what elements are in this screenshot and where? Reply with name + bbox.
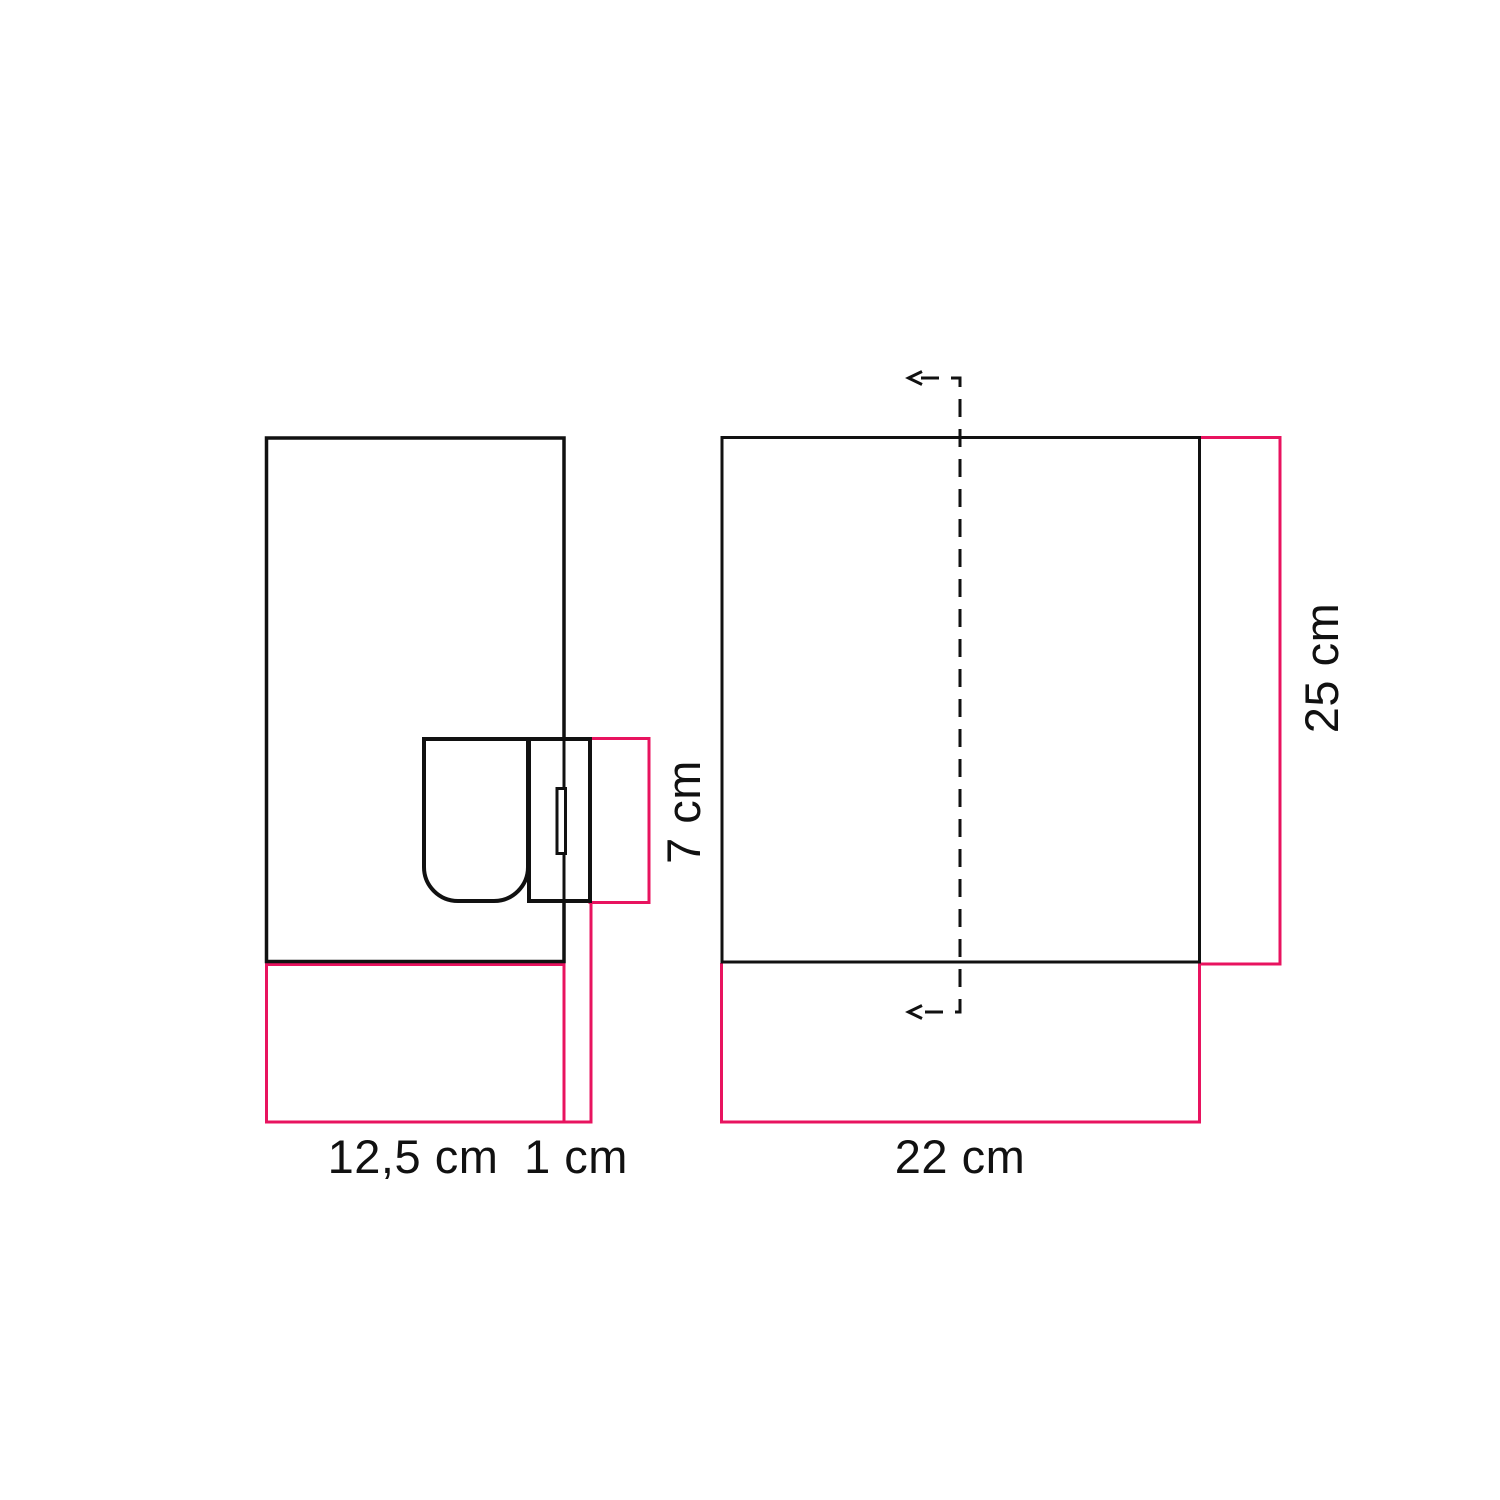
dim-label-front-height: 25 cm (1295, 603, 1348, 734)
axis-arrow-top-icon (909, 372, 923, 385)
dim-label-plate-depth: 1 cm (524, 1130, 628, 1183)
dim-lines-front-height (1200, 438, 1281, 965)
dimension-diagram: 12,5 cm 1 cm 22 cm 7 cm 25 cm (0, 0, 1500, 1500)
center-axis-dashed (921, 378, 960, 1012)
cable-slot (557, 789, 566, 854)
dim-box-side-width (267, 965, 565, 1123)
dim-box-socket-height (590, 739, 649, 903)
dim-label-front-width: 22 cm (895, 1130, 1026, 1183)
dim-label-side-width: 12,5 cm (328, 1130, 499, 1183)
dim-label-socket-height: 7 cm (657, 760, 710, 864)
lamp-holder-cup (424, 739, 528, 901)
dim-lines-plate-depth (564, 902, 591, 1123)
dimension-diagram-canvas: 12,5 cm 1 cm 22 cm 7 cm 25 cm (0, 0, 1500, 1500)
axis-arrow-bottom-icon (909, 1006, 923, 1019)
